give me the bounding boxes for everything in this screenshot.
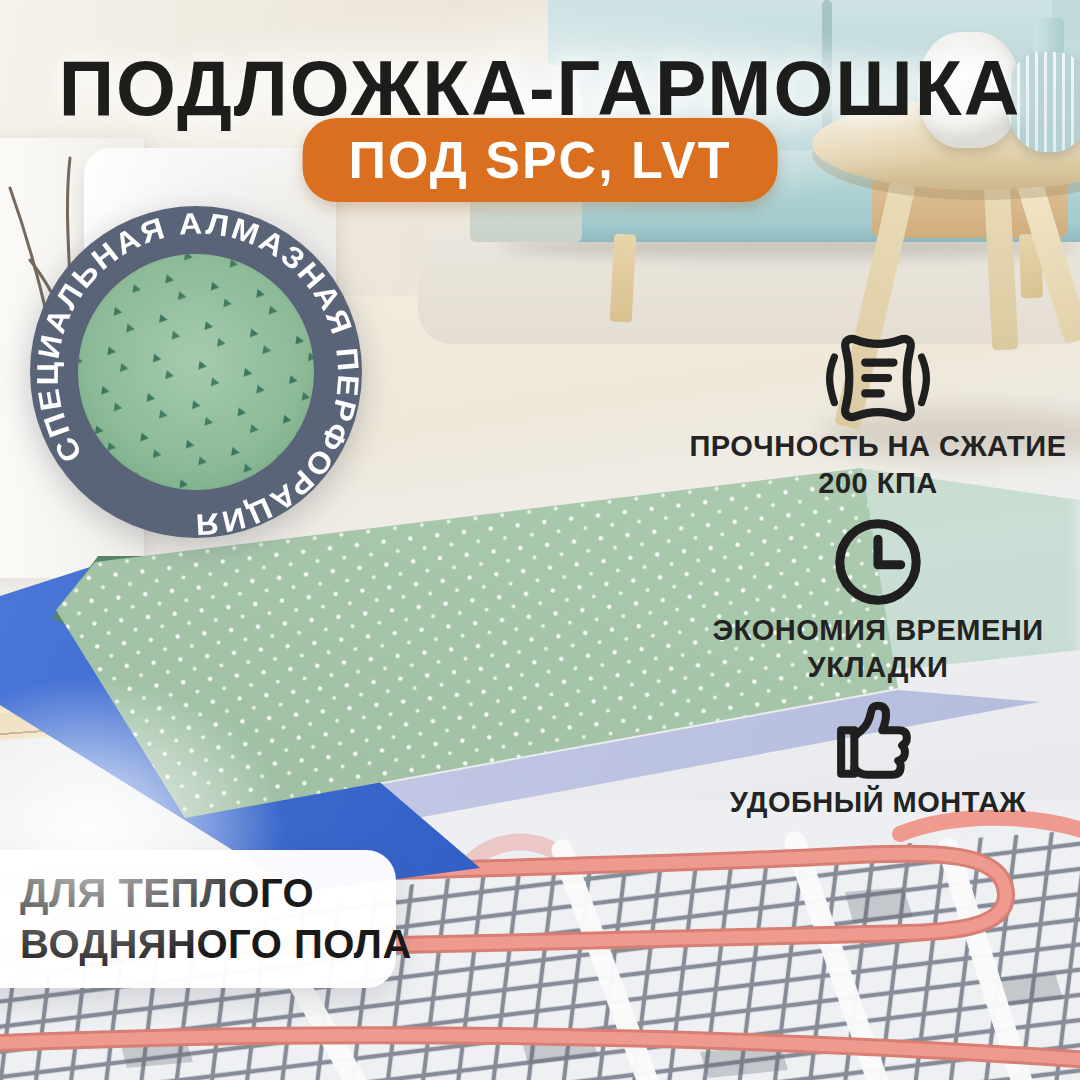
feature-caption: УДОБНЫЙ МОНТАЖ (678, 784, 1078, 821)
feature-caption: ЭКОНОМИЯ ВРЕМЕНИ (678, 612, 1078, 649)
feature-caption: ПРОЧНОСТЬ НА СЖАТИЕ (678, 428, 1078, 465)
bottom-banner-line: ДЛЯ ТЕПЛОГО (20, 868, 396, 919)
compression-icon (819, 328, 937, 428)
feature-caption: 200 КПА (678, 465, 1078, 502)
feature-caption: УКЛАДКИ (678, 649, 1078, 686)
bottom-banner-line: ВОДНЯНОГО ПОЛА (20, 919, 396, 970)
clock-icon (828, 512, 928, 612)
subtitle-badge: ПОД SPC, LVT (303, 118, 778, 202)
product-banner: СПЕЦИАЛЬНАЯ АЛМАЗНАЯ ПЕРФОРАЦИЯ ПОДЛОЖКА… (0, 0, 1080, 1080)
feature-easy-install: УДОБНЫЙ МОНТАЖ (678, 688, 1078, 821)
feature-compression: ПРОЧНОСТЬ НА СЖАТИЕ 200 КПА (678, 328, 1078, 501)
sofa-leg (610, 233, 637, 322)
bottom-banner: ДЛЯ ТЕПЛОГО ВОДНЯНОГО ПОЛА (0, 850, 396, 988)
thumbs-up-icon (826, 688, 930, 784)
feature-time-saving: ЭКОНОМИЯ ВРЕМЕНИ УКЛАДКИ (678, 512, 1078, 685)
perforation-seal: СПЕЦИАЛЬНАЯ АЛМАЗНАЯ ПЕРФОРАЦИЯ (28, 204, 364, 540)
